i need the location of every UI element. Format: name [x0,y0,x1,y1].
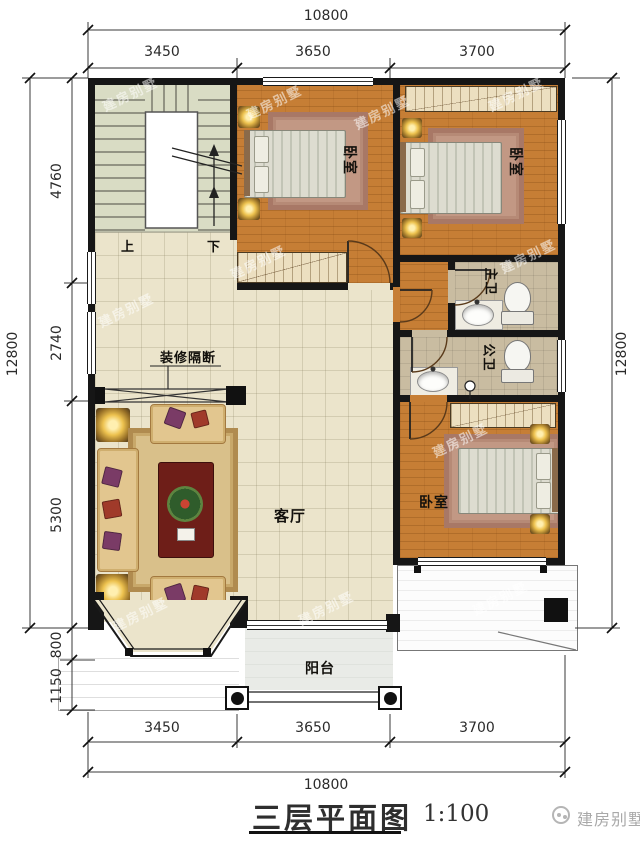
balcony-railing [249,692,378,702]
line-art-overlay [0,0,640,843]
dim-top-seg-3: 3700 [451,44,503,60]
dim-top-seg-2: 3650 [287,44,339,60]
dim-left-seg-1: 4760 [49,151,65,211]
dim-bottom-total: 10800 [300,777,352,793]
staircase [95,85,242,232]
room-label-balcony: 阳台 [298,658,342,678]
dim-left-seg-5: 1150 [49,656,65,716]
dim-bottom-seg-3: 3700 [451,720,503,736]
bay-window [95,599,246,656]
dim-bottom-seg-1: 3450 [136,720,188,736]
drawing-scale: 1:100 [423,801,489,827]
partition-leader-line [150,366,221,389]
room-label-bath-public: 公卫 [481,340,500,376]
dim-left-seg-2: 2740 [49,313,65,373]
bath-details [431,300,480,400]
logo-text: 建房别墅 [577,806,640,830]
doors [348,241,490,439]
room-label-partition: 装修隔断 [150,347,226,366]
stair-label-up: 上 [118,236,138,255]
stair-label-down: 下 [204,236,224,255]
floor-plan-canvas: 10800 3450 3650 3700 12800 4760 2740 530… [0,0,640,843]
room-label-bath-master: 主卫 [483,264,502,300]
floor-drain-icon [465,381,475,391]
dim-top-total: 10800 [300,8,352,24]
room-label-living: 客厅 [268,505,312,526]
dim-left-seg-3: 5300 [49,485,65,545]
terrace-roof-line [498,632,576,650]
dim-right-total: 12800 [614,324,630,384]
room-label-bedroom-top-mid: 卧室 [340,140,360,180]
room-label-bedroom-bottom-right: 卧室 [412,492,456,512]
room-label-bedroom-top-right: 卧室 [506,142,526,182]
dim-bottom-seg-2: 3650 [287,720,339,736]
title-underline [249,831,401,834]
logo-icon [552,806,570,824]
window-jamb [540,566,547,573]
window-jamb [414,566,421,573]
decorative-partition [95,366,246,405]
stair-void [146,112,198,228]
dim-top-seg-1: 3450 [136,44,188,60]
dim-left-total: 12800 [5,324,21,384]
